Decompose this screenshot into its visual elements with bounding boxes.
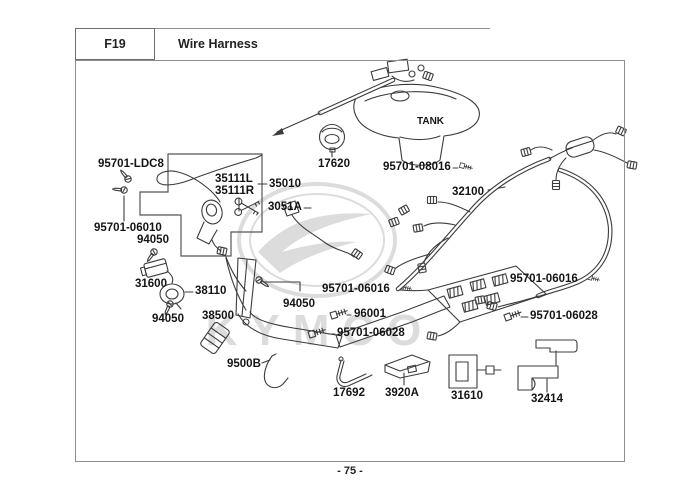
part-label-35111l: 35111L [215, 174, 253, 186]
part-label-95701-06016: 95701-06016 [322, 284, 390, 296]
part-label-31610: 31610 [451, 391, 483, 403]
part-label-96001: 96001 [354, 309, 386, 321]
part-label-31600: 31600 [135, 279, 167, 291]
footer-page-number: - 75 - [0, 465, 700, 477]
part-label-38110: 38110 [195, 286, 226, 298]
catalog-page: KYMCO [0, 0, 700, 495]
part-label-3051a: 3051A [268, 202, 302, 214]
part-label-17620: 17620 [318, 159, 350, 171]
part-label-94050: 94050 [137, 235, 169, 247]
part-label-35111r: 35111R [215, 186, 254, 198]
part-label-38500: 38500 [202, 311, 234, 323]
page-title: Wire Harness [178, 37, 258, 51]
part-label-17692: 17692 [333, 388, 365, 400]
part-label-94050: 94050 [283, 299, 315, 311]
section-code: F19 [104, 37, 126, 51]
part-label-95701-ldc8: 95701-LDC8 [98, 159, 164, 171]
section-code-box: F19 [75, 28, 155, 60]
part-label-95701-06016: 95701-06016 [510, 274, 578, 286]
part-label-9500b: 9500B [227, 359, 261, 371]
part-label-95701-06010: 95701-06010 [94, 223, 162, 235]
part-label-95701-06028: 95701-06028 [337, 328, 405, 340]
part-label-3920a: 3920A [385, 388, 419, 400]
tank-label: TANK [417, 116, 444, 127]
part-label-35010: 35010 [269, 179, 301, 191]
part-label-95701-06028: 95701-06028 [530, 311, 598, 323]
part-label-95701-08016: 95701-08016 [383, 162, 451, 174]
part-label-32414: 32414 [531, 394, 563, 406]
part-label-94050: 94050 [152, 314, 184, 326]
part-label-32100: 32100 [452, 187, 484, 199]
